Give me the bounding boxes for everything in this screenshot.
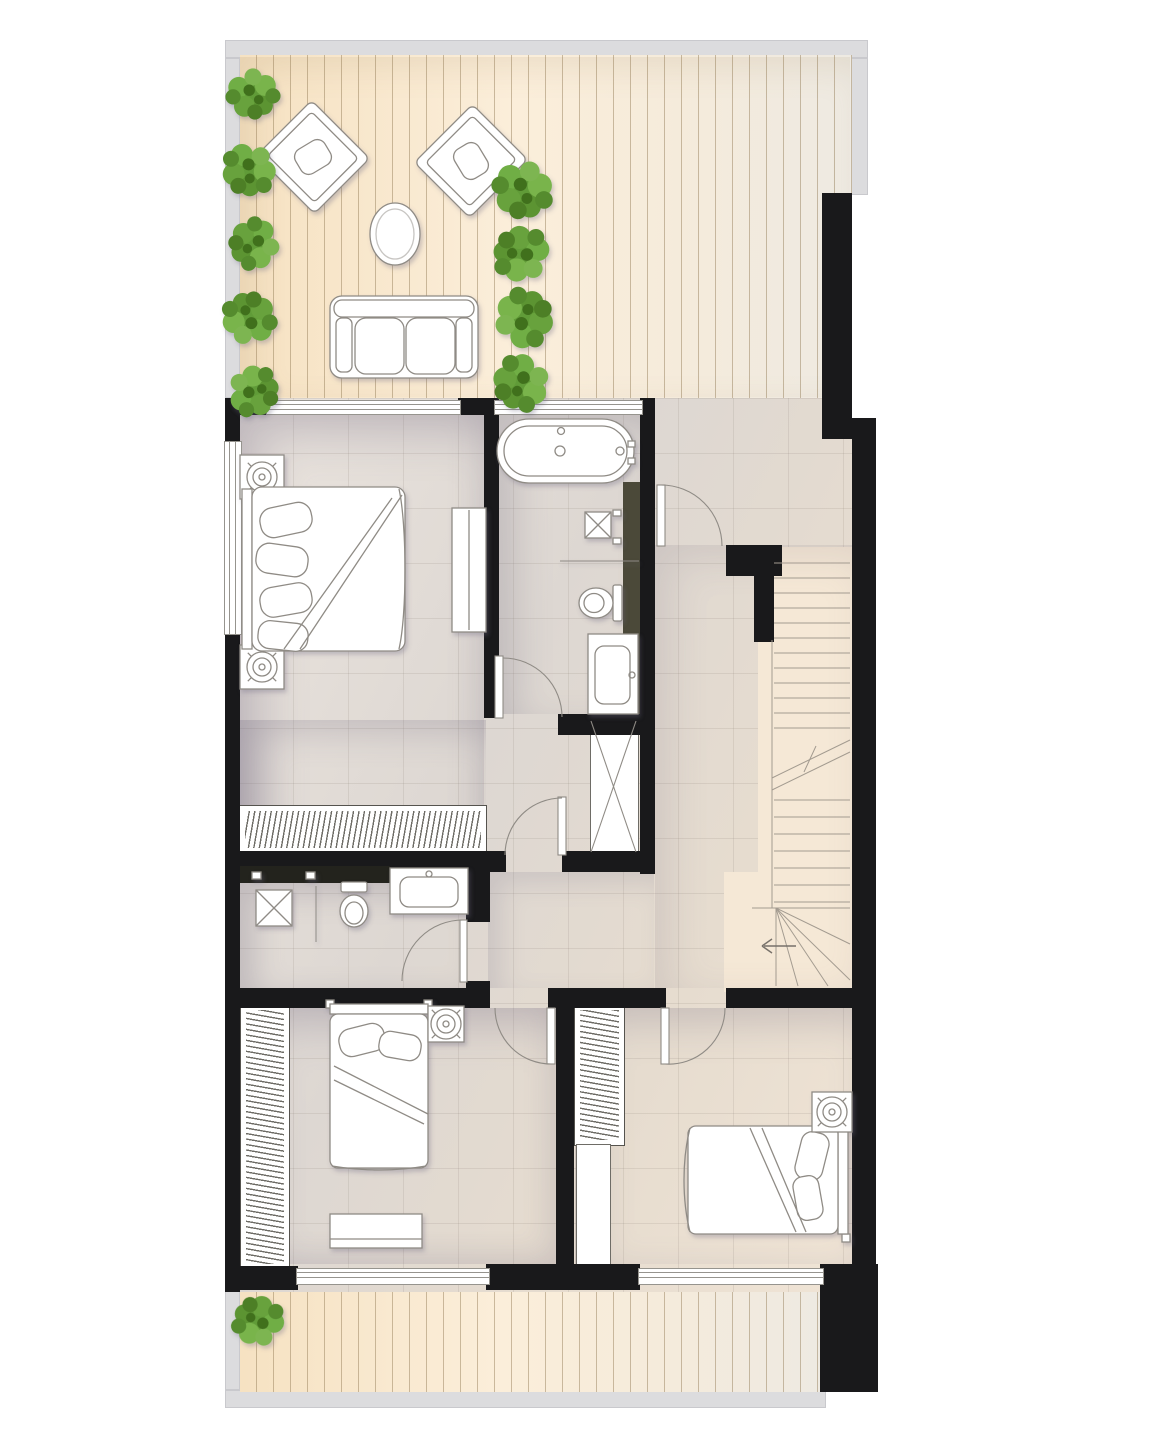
wall-bottom-right [820, 1264, 878, 1392]
border-right-terrace [850, 58, 868, 195]
wall-master-south-right [562, 851, 655, 872]
wall-stair-head-v [754, 545, 774, 642]
floor-plan [0, 0, 1152, 1440]
window-master-bathroom [494, 400, 643, 415]
stair-landing-floor [724, 872, 852, 992]
window-master-bedroom-west [224, 441, 242, 635]
sliding-glass-master-bedroom [266, 400, 461, 415]
wall-bed-bath-divider [484, 398, 499, 718]
wall-bath-east [640, 398, 655, 874]
wall-bath2-east-top [466, 872, 490, 922]
wall-bedroom-divider [556, 1004, 574, 1270]
sliding-glass-bedroom-left [296, 1268, 490, 1285]
border-left-terrace [225, 58, 240, 398]
wardrobe-bedroom-right [574, 1004, 625, 1146]
wall-right [852, 418, 876, 1270]
sliding-glass-bedroom-right [638, 1268, 824, 1285]
wardrobe-side-panel [576, 1144, 611, 1270]
bath2-fixture-band [240, 866, 390, 883]
border-bottom [225, 1390, 826, 1408]
wall-bedrooms-north-left [225, 988, 485, 1008]
wall-bottom-mid [486, 1264, 640, 1290]
service-shaft [623, 482, 640, 724]
wall-bottom-left [225, 1266, 298, 1290]
wall-right-terrace-chunk [822, 193, 852, 439]
linen-cabinet [590, 720, 639, 855]
balcony-decking [240, 1288, 822, 1392]
wall-bedrooms-north-right [726, 988, 852, 1008]
walk-in-closet-wardrobe [239, 805, 487, 854]
wardrobe-bedroom-left [240, 1004, 290, 1270]
border-left-balcony [225, 1290, 240, 1390]
